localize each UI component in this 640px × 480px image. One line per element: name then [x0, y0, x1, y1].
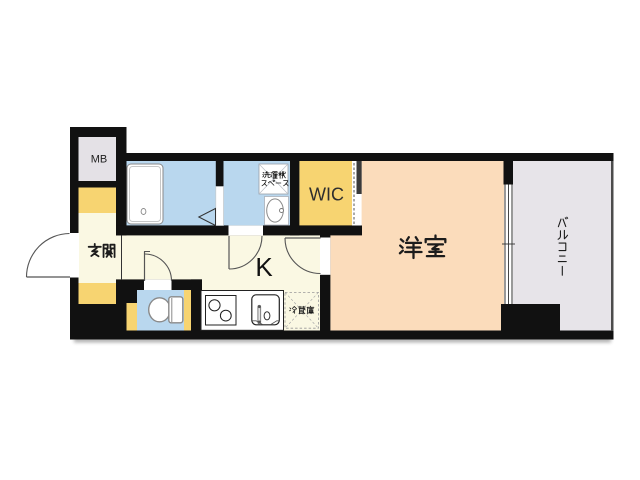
svg-text:MB: MB	[91, 154, 108, 166]
svg-text:K: K	[255, 252, 273, 282]
svg-text:WIC: WIC	[309, 185, 344, 205]
